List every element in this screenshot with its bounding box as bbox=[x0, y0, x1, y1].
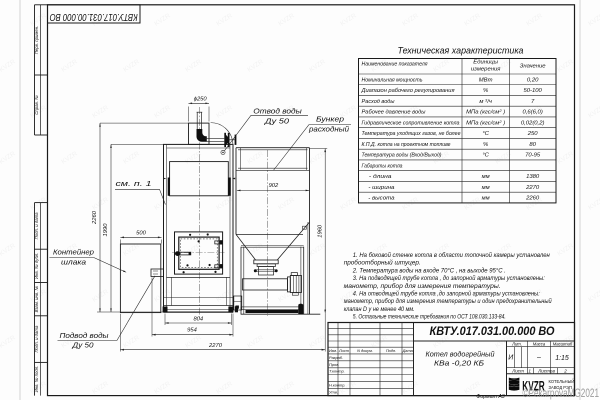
svg-text:–: – bbox=[536, 355, 541, 362]
svg-text:KVZR: KVZR bbox=[29, 12, 48, 27]
svg-text:см. п. 1: см. п. 1 bbox=[116, 181, 152, 188]
svg-text:KVZR: KVZR bbox=[0, 334, 17, 349]
svg-text:7: 7 bbox=[531, 99, 535, 105]
svg-text:манометр, прибор для измерени: манометр, прибор для измерения температу… bbox=[344, 297, 552, 305]
svg-text:0,02(0,2): 0,02(0,2) bbox=[521, 120, 545, 126]
svg-text:Изм.: Изм. bbox=[329, 348, 337, 353]
svg-text:°С: °С bbox=[482, 131, 489, 137]
svg-text:МПа (кгс/см2 ): МПа (кгс/см2 ) bbox=[466, 119, 505, 127]
svg-text:80: 80 bbox=[529, 142, 536, 148]
svg-text:2: 2 bbox=[563, 369, 567, 374]
svg-text:Т.контр.: Т.контр. bbox=[329, 369, 345, 374]
svg-text:Номинальная мощность: Номинальная мощность bbox=[362, 77, 423, 83]
svg-text:KVZR: KVZR bbox=[91, 104, 110, 119]
svg-text:1990: 1990 bbox=[103, 223, 109, 237]
svg-text:KVZR: KVZR bbox=[29, 196, 48, 211]
svg-text:KVZR: KVZR bbox=[401, 380, 420, 395]
svg-text:KVZR: KVZR bbox=[339, 196, 358, 211]
svg-text:Температура уходящих газов, не: Температура уходящих газов, не более bbox=[362, 131, 462, 137]
svg-text:Подвод воды: Подвод воды bbox=[60, 332, 110, 340]
svg-text:KVZR: KVZR bbox=[184, 150, 203, 165]
svg-text:Утв.: Утв. bbox=[329, 390, 338, 395]
svg-text:Расход воды: Расход воды bbox=[362, 99, 396, 105]
svg-text:KVZR: KVZR bbox=[60, 150, 79, 165]
svg-text:И: И bbox=[508, 355, 514, 362]
svg-text:Ду 50: Ду 50 bbox=[71, 343, 93, 350]
svg-text:KVZR: KVZR bbox=[277, 288, 296, 303]
svg-text:Пров.: Пров. bbox=[329, 362, 339, 367]
svg-text:Справ. №: Справ. № bbox=[34, 95, 39, 115]
svg-text:Отвод воды: Отвод воды bbox=[253, 107, 302, 115]
svg-text:500: 500 bbox=[136, 230, 146, 236]
svg-text:0,20: 0,20 bbox=[527, 77, 539, 83]
svg-text:КОТЕЛЬНЫЙ: КОТЕЛЬНЫЙ bbox=[549, 379, 575, 384]
svg-text:KVZR: KVZR bbox=[215, 196, 234, 211]
svg-text:мм: мм bbox=[482, 174, 490, 180]
svg-text:мм: мм bbox=[482, 196, 490, 202]
svg-text:Формат А3: Формат А3 bbox=[476, 394, 504, 400]
svg-text:KVZR: KVZR bbox=[494, 150, 513, 165]
svg-text:пробоотборный штуцер.: пробоотборный штуцер. bbox=[344, 259, 421, 267]
svg-text:KVZR: KVZR bbox=[587, 104, 600, 119]
svg-text:Габариты котла: Габариты котла bbox=[362, 163, 404, 169]
svg-text:KVZR: KVZR bbox=[525, 12, 544, 27]
svg-text:KVZR: KVZR bbox=[0, 58, 17, 73]
svg-text:KVZR: KVZR bbox=[60, 58, 79, 73]
svg-text:KVZR: KVZR bbox=[246, 150, 265, 165]
svg-text:Гидравлическое сопротивление к: Гидравлическое сопротивление котла bbox=[362, 120, 461, 126]
svg-text:К.П.Д. котла на проектном топл: К.П.Д. котла на проектном топливе bbox=[362, 142, 452, 148]
svg-text:KVZR: KVZR bbox=[122, 334, 141, 349]
svg-text:KVZR: KVZR bbox=[587, 196, 600, 211]
svg-text:3. На подводящей трубе котла: 3. На подводящей трубе котла , до запорн… bbox=[353, 274, 545, 282]
svg-text:1380: 1380 bbox=[526, 174, 540, 180]
svg-text:KVZR: KVZR bbox=[308, 150, 327, 165]
svg-text:2260: 2260 bbox=[92, 210, 98, 225]
svg-text:4. На отводящей трубе котла ,: 4. На отводящей трубе котла ,до запорной… bbox=[353, 290, 540, 298]
svg-text:Инв. № подл.: Инв. № подл. bbox=[34, 366, 39, 393]
svg-text:KVZR: KVZR bbox=[153, 288, 172, 303]
svg-text:1:15: 1:15 bbox=[555, 355, 569, 362]
svg-text:KVZR: KVZR bbox=[246, 242, 265, 257]
svg-text:KVZR: KVZR bbox=[215, 380, 234, 395]
svg-text:KVZR: KVZR bbox=[277, 12, 296, 27]
svg-text:%: % bbox=[483, 142, 488, 148]
svg-text:Значение: Значение bbox=[520, 64, 547, 70]
svg-text:KVZR: KVZR bbox=[277, 196, 296, 211]
svg-text:902: 902 bbox=[269, 183, 279, 189]
svg-text:Ду 50: Ду 50 bbox=[264, 118, 289, 125]
svg-text:Рабочее давление воды: Рабочее давление воды bbox=[362, 110, 427, 116]
svg-text:Лист: Лист bbox=[511, 369, 524, 374]
svg-text:2270: 2270 bbox=[525, 185, 540, 191]
svg-text:Н.контр.: Н.контр. bbox=[329, 383, 345, 388]
svg-text:804: 804 bbox=[193, 317, 203, 323]
svg-text:KVZR: KVZR bbox=[0, 150, 17, 165]
svg-text:2. Температура воды на входе: 2. Температура воды на входе 70°С , на в… bbox=[352, 266, 506, 274]
svg-text:КВТУ.017.031.00.000 ВО: КВТУ.017.031.00.000 ВО bbox=[430, 324, 555, 338]
svg-text:КВа -0,20 КБ: КВа -0,20 КБ bbox=[434, 359, 484, 368]
svg-text:KVZR: KVZR bbox=[463, 12, 482, 27]
svg-text:KVZR: KVZR bbox=[122, 58, 141, 73]
svg-text:1960: 1960 bbox=[318, 224, 324, 238]
svg-text:м 3/ч: м 3/ч bbox=[479, 97, 492, 105]
svg-text:Диапазон рабочего регулировани: Диапазон рабочего регулирования bbox=[361, 88, 456, 94]
svg-text:954: 954 bbox=[187, 328, 197, 334]
svg-text:KVZR: KVZR bbox=[91, 380, 110, 395]
svg-text:Контейнер: Контейнер bbox=[53, 248, 94, 256]
svg-text:KVZR: KVZR bbox=[246, 58, 265, 73]
svg-text:KVZR: KVZR bbox=[432, 58, 451, 73]
svg-text:KVZR: KVZR bbox=[463, 196, 482, 211]
svg-text:Котел водогрейный: Котел водогрейный bbox=[426, 350, 496, 359]
svg-text:Единицы: Единицы bbox=[473, 60, 498, 66]
svg-text:KVZR: KVZR bbox=[401, 196, 420, 211]
svg-text:KVZR: KVZR bbox=[339, 12, 358, 27]
svg-text:Разраб.: Разраб. bbox=[329, 355, 343, 360]
svg-text:KVZR: KVZR bbox=[308, 242, 327, 257]
svg-text:Масса: Масса bbox=[533, 342, 546, 347]
svg-text:KVZR: KVZR bbox=[122, 150, 141, 165]
svg-text:KVZR: KVZR bbox=[556, 150, 575, 165]
svg-text:Наименование показателя: Наименование показателя bbox=[362, 62, 429, 68]
svg-text:МПа (кгс/см2 ): МПа (кгс/см2 ) bbox=[466, 108, 505, 116]
svg-text:KVZR: KVZR bbox=[308, 334, 327, 349]
svg-text:Техническая характеристика: Техническая характеристика bbox=[398, 46, 524, 56]
svg-text:Листов: Листов bbox=[537, 369, 555, 374]
svg-text:Подп. и дата: Подп. и дата bbox=[34, 212, 39, 240]
svg-text:KVZR: KVZR bbox=[91, 196, 110, 211]
svg-text:КВТУ.017.031.00.000 ВО: КВТУ.017.031.00.000 ВО bbox=[49, 11, 137, 22]
svg-text:1. На боковой стенке котла в: 1. На боковой стенке котла в области топ… bbox=[353, 251, 550, 259]
svg-text:Бункер: Бункер bbox=[316, 117, 344, 124]
svg-text:Перв. примен.: Перв. примен. bbox=[34, 26, 39, 55]
svg-text:KVZR: KVZR bbox=[153, 380, 172, 395]
svg-text:измерения: измерения bbox=[471, 67, 501, 73]
svg-text:Лист: Лист bbox=[338, 348, 350, 353]
svg-text:N докум.: N докум. bbox=[357, 348, 373, 353]
svg-text:KVZR: KVZR bbox=[246, 334, 265, 349]
svg-text:Дата: Дата bbox=[402, 348, 414, 353]
svg-text:Инв. № дубл.: Инв. № дубл. bbox=[34, 253, 39, 279]
svg-text:- ширина: - ширина bbox=[362, 185, 396, 191]
svg-text:0,6(6,0): 0,6(6,0) bbox=[522, 110, 542, 116]
svg-text:KVZR: KVZR bbox=[0, 242, 17, 257]
svg-text:KVZR: KVZR bbox=[215, 288, 234, 303]
svg-text:манометр, прибор для измерени: манометр, прибор для измерения температу… bbox=[344, 282, 501, 290]
svg-text:Подп.: Подп. bbox=[386, 348, 396, 353]
svg-text:2270: 2270 bbox=[208, 343, 223, 349]
svg-text:KVZR: KVZR bbox=[215, 12, 234, 27]
svg-text:KVZR: KVZR bbox=[587, 288, 600, 303]
svg-text:KVZR: KVZR bbox=[556, 242, 575, 257]
svg-text:%: % bbox=[483, 88, 488, 94]
svg-text:шлака: шлака bbox=[61, 259, 86, 266]
svg-text:Масштаб: Масштаб bbox=[553, 342, 573, 347]
svg-text:KVZR: KVZR bbox=[184, 242, 203, 257]
svg-text:KVZR: KVZR bbox=[308, 58, 327, 73]
svg-text:Взам. инв. №: Взам. инв. № bbox=[34, 285, 39, 312]
svg-text:Температура воды (Вход/Выход): Температура воды (Вход/Выход) bbox=[362, 153, 442, 159]
svg-text:KVZR: KVZR bbox=[556, 58, 575, 73]
svg-text:- длина: - длина bbox=[362, 174, 393, 180]
svg-text:Лит.: Лит. bbox=[511, 342, 522, 347]
svg-text:©PekarpovaMG2021: ©PekarpovaMG2021 bbox=[523, 386, 600, 400]
svg-text:- высота: - высота bbox=[362, 196, 396, 202]
svg-text:клапан D у не менее 40 мм.: клапан D у не менее 40 мм. bbox=[344, 306, 415, 313]
svg-text:мм: мм bbox=[482, 185, 490, 191]
svg-text:50-100: 50-100 bbox=[523, 88, 542, 94]
svg-text:1: 1 bbox=[528, 369, 531, 374]
svg-text:KVZR: KVZR bbox=[153, 196, 172, 211]
svg-text:KVZR: KVZR bbox=[184, 58, 203, 73]
svg-text:Подп. и дата: Подп. и дата bbox=[34, 325, 39, 353]
svg-text:250: 250 bbox=[527, 131, 539, 137]
svg-text:2260: 2260 bbox=[525, 196, 540, 202]
svg-text:KVZR: KVZR bbox=[122, 242, 141, 257]
svg-text:KVZR: KVZR bbox=[277, 380, 296, 395]
svg-text:KVZR: KVZR bbox=[153, 12, 172, 27]
svg-text:°С: °С bbox=[482, 153, 489, 159]
svg-text:ϕ250: ϕ250 bbox=[194, 97, 208, 103]
svg-text:МВт: МВт bbox=[479, 77, 493, 83]
svg-text:KVZR: KVZR bbox=[215, 104, 234, 119]
svg-text:5. Остальные технические треб: 5. Остальные технические требования по О… bbox=[353, 313, 506, 321]
svg-text:KVZR: KVZR bbox=[91, 288, 110, 303]
svg-text:70-95: 70-95 bbox=[525, 153, 541, 159]
svg-text:KVZR: KVZR bbox=[401, 12, 420, 27]
svg-text:KVZR: KVZR bbox=[153, 104, 172, 119]
svg-text:расходный: расходный bbox=[308, 125, 349, 133]
svg-text:KVZR: KVZR bbox=[587, 12, 600, 27]
svg-text:KVZR: KVZR bbox=[184, 334, 203, 349]
